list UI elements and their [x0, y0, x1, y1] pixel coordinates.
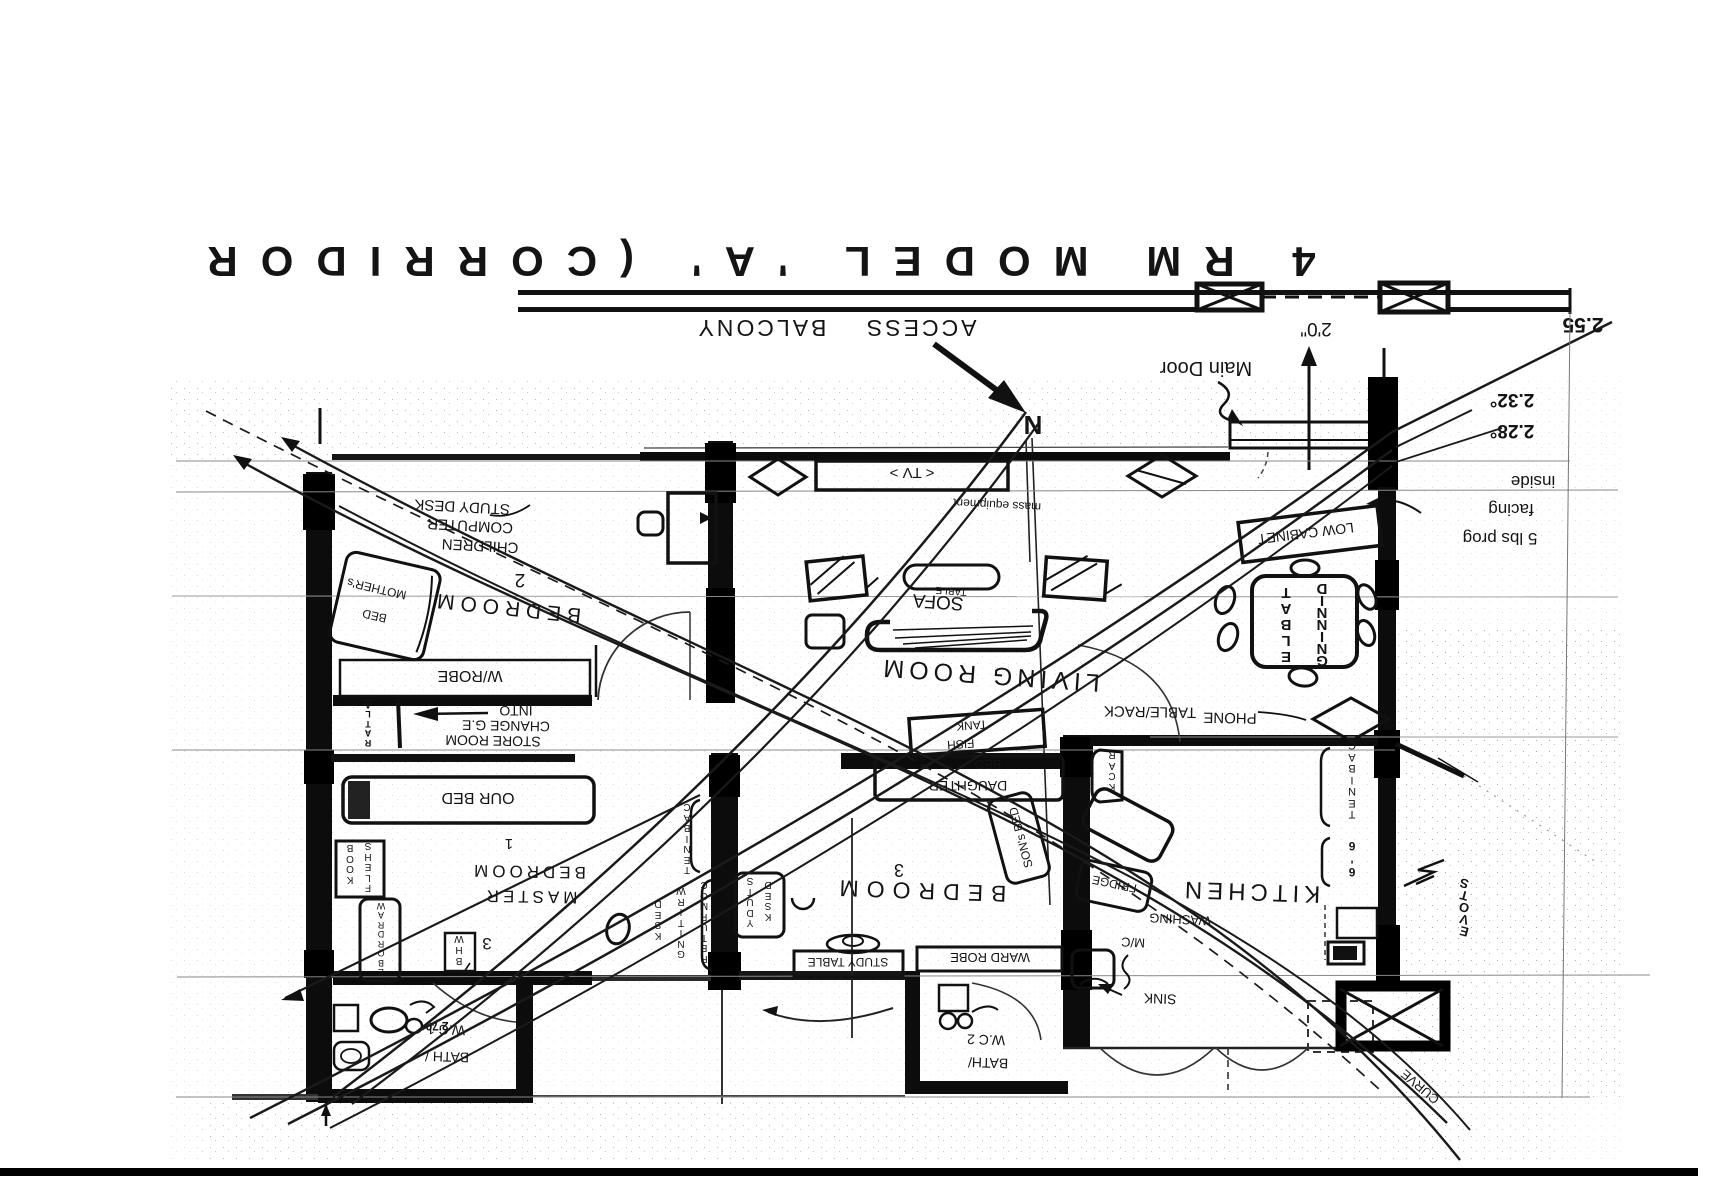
svg-text:R: R [377, 939, 384, 949]
svg-text:T: T [1281, 584, 1290, 601]
svg-text:R: R [364, 738, 371, 748]
svg-text:< TV >: < TV > [889, 464, 934, 481]
svg-text:E: E [683, 854, 690, 865]
svg-text:Main Door: Main Door [1160, 357, 1253, 379]
svg-text:E: E [700, 942, 707, 953]
svg-text:6: 6 [1348, 865, 1355, 879]
svg-text:G: G [677, 948, 685, 959]
svg-text:S: S [364, 840, 371, 851]
svg-text:INTO: INTO [499, 703, 532, 719]
svg-text:M/C: M/C [1121, 934, 1146, 950]
svg-text:E: E [1281, 648, 1291, 665]
svg-text:PHONE: PHONE [1203, 709, 1257, 727]
svg-text:L: L [365, 872, 371, 883]
svg-text:KITCHEN: KITCHEN [1179, 876, 1320, 908]
svg-text:B: B [1348, 762, 1355, 774]
svg-text:T: T [1348, 808, 1355, 820]
svg-text:A: A [378, 910, 384, 920]
svg-text:WARD ROBE: WARD ROBE [950, 950, 1030, 965]
svg-text:T: T [365, 719, 371, 729]
svg-text:T: T [701, 932, 707, 943]
svg-text:S: S [764, 900, 771, 911]
svg-text:6: 6 [1348, 839, 1355, 853]
svg-text:TABLE: TABLE [935, 584, 967, 597]
svg-text:3: 3 [482, 934, 491, 953]
svg-text:R: R [677, 896, 684, 907]
svg-text:inside: inside [1511, 472, 1555, 491]
svg-text:B: B [378, 958, 384, 968]
svg-text:E: E [654, 909, 661, 920]
svg-text:TABLE/RACK: TABLE/RACK [1104, 702, 1197, 721]
svg-text:A: A [1108, 760, 1115, 771]
svg-text:Y: Y [746, 917, 753, 928]
svg-text:I: I [1350, 774, 1353, 786]
svg-text:W/ROBE: W/ROBE [438, 667, 503, 684]
svg-text:S: S [746, 875, 753, 886]
svg-text:E: E [764, 890, 771, 901]
svg-text:BATH/: BATH/ [968, 1054, 1009, 1071]
svg-text:O: O [346, 853, 354, 864]
svg-text:N: N [683, 843, 690, 854]
svg-text:W: W [454, 933, 464, 944]
svg-text:A: A [1280, 600, 1291, 617]
svg-text:W.C 2: W.C 2 [967, 1031, 1006, 1048]
svg-text:B: B [455, 955, 462, 966]
svg-text:E: E [1348, 797, 1355, 809]
svg-text:D: D [746, 907, 753, 918]
svg-text:1: 1 [505, 835, 513, 852]
svg-text:B: B [1280, 616, 1291, 633]
svg-text:T: T [684, 864, 690, 875]
svg-text:C: C [1348, 739, 1356, 751]
svg-text:OUR BED: OUR BED [442, 789, 515, 806]
svg-text:W: W [376, 901, 385, 911]
svg-text:O: O [346, 863, 354, 874]
svg-text:ACCESS BALCONY: ACCESS BALCONY [695, 315, 976, 341]
svg-text:2: 2 [515, 569, 526, 590]
svg-text:C: C [1108, 770, 1115, 781]
svg-text:2'0": 2'0" [1300, 318, 1332, 339]
svg-text:STUDY TABLE: STUDY TABLE [808, 955, 889, 969]
svg-text:H: H [455, 944, 462, 955]
svg-text:D: D [377, 929, 384, 939]
svg-text:L: L [1281, 632, 1290, 649]
svg-text:4 RM MODEL 'A' (CORRIDOR: 4 RM MODEL 'A' (CORRIDOR [184, 238, 1315, 285]
svg-text:A: A [1348, 751, 1356, 763]
svg-text:I: I [686, 833, 689, 844]
svg-text:L: L [365, 709, 371, 719]
svg-text:R: R [377, 920, 384, 930]
svg-text:E: E [364, 861, 371, 872]
svg-text:R: R [1108, 749, 1115, 760]
svg-text:BED: BED [975, 757, 1002, 772]
svg-text:N: N [1024, 410, 1043, 440]
svg-text:K: K [764, 911, 771, 922]
svg-text:facing: facing [1488, 500, 1533, 519]
svg-text:T: T [678, 917, 684, 928]
svg-text:K: K [346, 874, 353, 885]
svg-text:H: H [364, 851, 371, 862]
svg-text:B: B [346, 842, 353, 853]
svg-text:C: C [700, 879, 707, 890]
svg-text:SINK: SINK [1143, 990, 1177, 1007]
svg-text:MASTER: MASTER [482, 886, 577, 907]
svg-text:R: R [700, 953, 707, 964]
svg-text:3: 3 [894, 860, 904, 880]
svg-text:P: P [700, 911, 707, 922]
svg-text:A: A [364, 728, 371, 738]
svg-text:F: F [365, 882, 371, 893]
svg-text:K: K [654, 930, 661, 941]
svg-text:5 lbs prog: 5 lbs prog [1463, 529, 1538, 548]
svg-text:N: N [1348, 785, 1356, 797]
svg-text:A: A [364, 700, 371, 710]
svg-text:2.55: 2.55 [1562, 313, 1603, 336]
svg-text:E: E [378, 967, 384, 977]
svg-text:2.32°: 2.32° [1490, 389, 1535, 410]
svg-text:G: G [1316, 652, 1328, 669]
svg-text:': ' [1350, 852, 1353, 866]
